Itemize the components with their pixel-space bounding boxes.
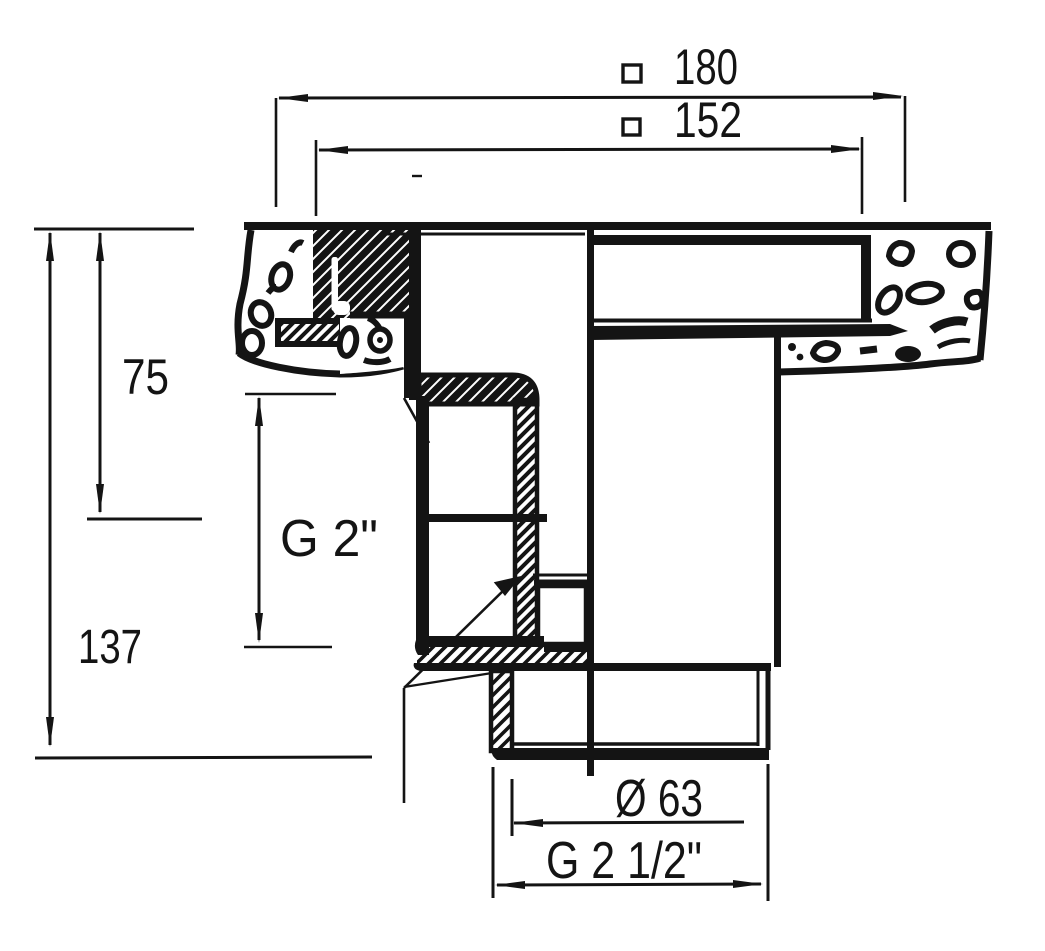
svg-text:G 2": G 2" (280, 510, 378, 568)
svg-text:180: 180 (674, 39, 738, 95)
svg-text:G 2 1/2": G 2 1/2" (546, 832, 702, 890)
svg-text:137: 137 (78, 621, 142, 674)
svg-text:152: 152 (674, 92, 742, 148)
svg-text:75: 75 (122, 349, 169, 405)
svg-text:Ø 63: Ø 63 (615, 770, 703, 828)
